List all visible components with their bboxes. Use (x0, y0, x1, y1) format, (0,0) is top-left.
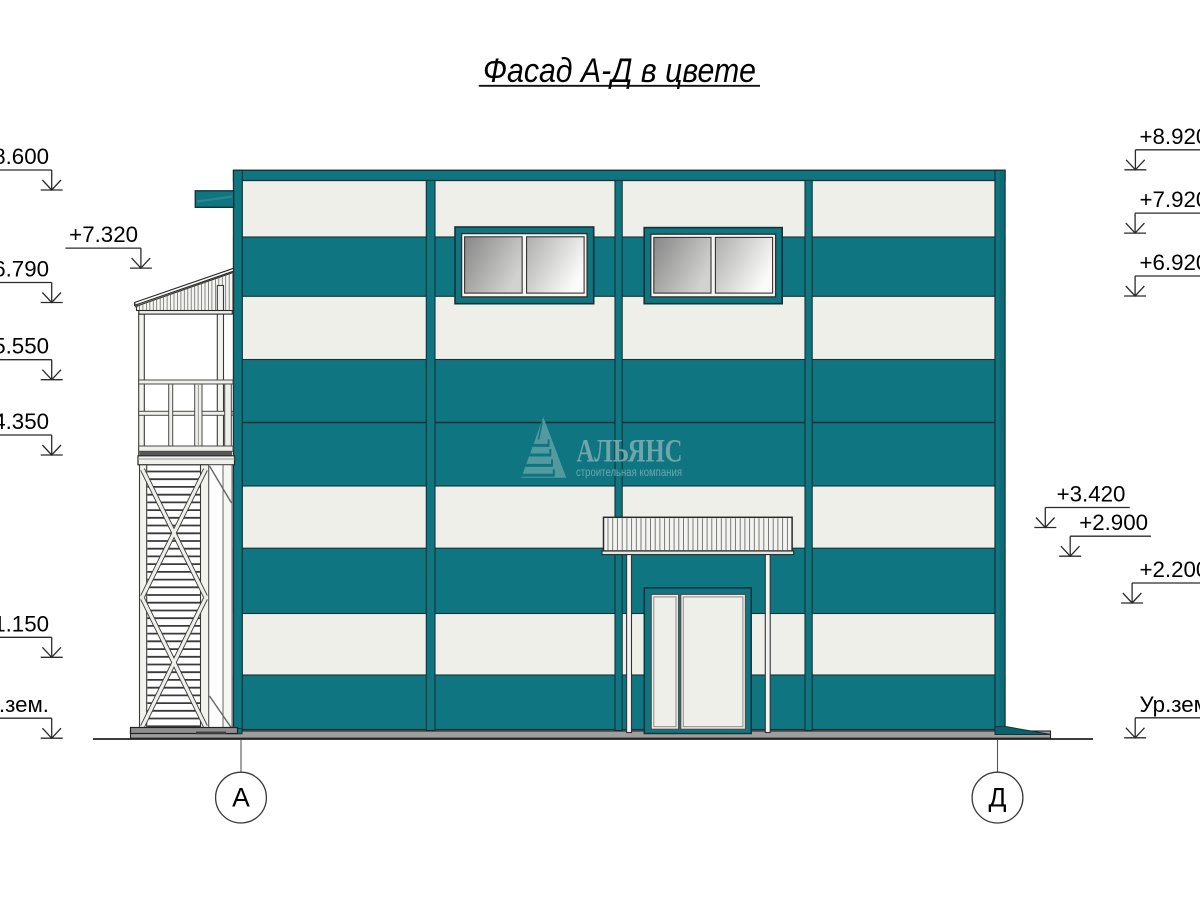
svg-text:+7.920: +7.920 (1140, 187, 1200, 212)
svg-text:Ур.зем.: Ур.зем. (0, 692, 49, 717)
svg-text:+2.200: +2.200 (1140, 557, 1200, 582)
svg-text:+5.550: +5.550 (0, 334, 49, 359)
svg-text:+8.600: +8.600 (0, 144, 49, 169)
svg-text:Д: Д (989, 782, 1007, 812)
svg-text:+8.920: +8.920 (1140, 124, 1200, 149)
svg-text:А: А (232, 783, 250, 813)
svg-text:+6.920: +6.920 (1140, 250, 1200, 275)
svg-text:Фасад А-Д в цвете: Фасад А-Д в цвете (483, 52, 756, 90)
svg-text:Ур.зем.: Ур.зем. (1140, 692, 1200, 717)
svg-text:+2.900: +2.900 (1079, 510, 1148, 535)
svg-text:+6.790: +6.790 (0, 257, 49, 282)
svg-text:АЛЬЯНС: АЛЬЯНС (577, 434, 683, 470)
svg-text:+4.350: +4.350 (0, 409, 49, 434)
svg-text:+7.320: +7.320 (69, 222, 138, 247)
svg-text:строительная компания: строительная компания (576, 467, 682, 479)
svg-text:+3.420: +3.420 (1057, 482, 1126, 507)
svg-text:+1.150: +1.150 (0, 611, 49, 636)
